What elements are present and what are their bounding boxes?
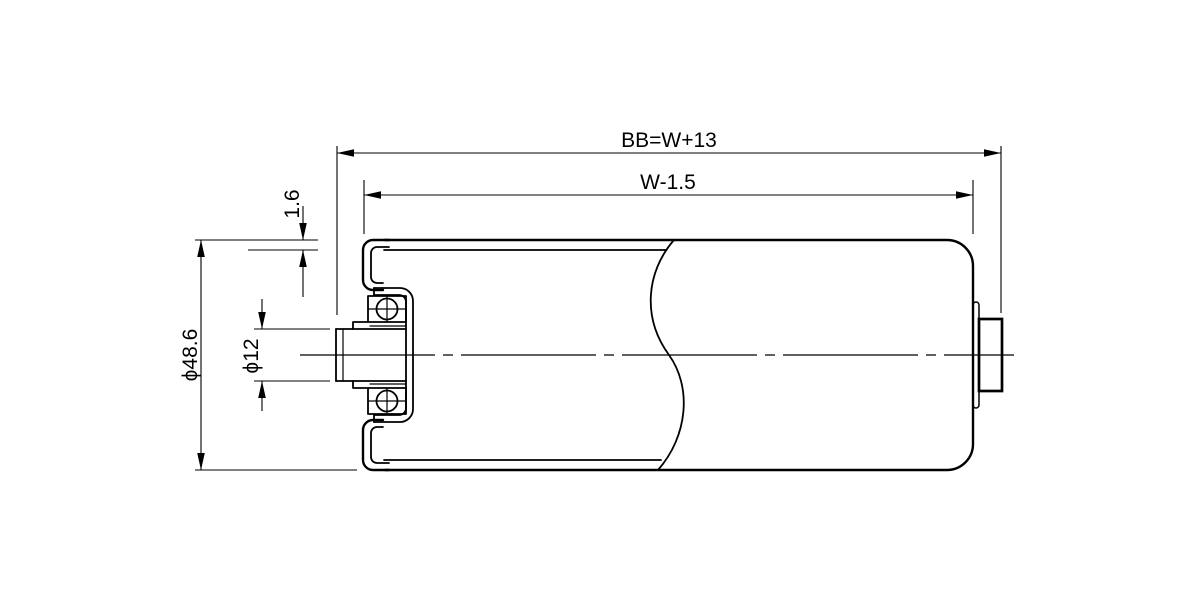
tube-rolled-lip-top-inner — [371, 247, 389, 283]
dim-label-overall-length: BB=W+13 — [621, 129, 717, 152]
dimension-tube-length: W-1.5 — [364, 171, 973, 234]
dimension-wall-thickness: 1.6 — [248, 189, 318, 297]
tube-rolled-lip-bottom-inner — [371, 427, 389, 463]
dim-label-tube-length: W-1.5 — [640, 171, 696, 194]
dimension-overall-length: BB=W+13 — [337, 129, 1001, 315]
roller-technical-drawing: BB=W+13 W-1.5 ϕ48.6 ϕ12 1.6 — [0, 0, 1200, 600]
arrowhead-top — [197, 240, 205, 257]
dim-label-shaft-diameter: ϕ12 — [240, 338, 263, 373]
dim-label-roller-diameter: ϕ48.6 — [179, 329, 202, 382]
hub-step-top — [353, 322, 368, 329]
hub-step-bottom — [353, 381, 368, 388]
dim-label-wall-thickness: 1.6 — [281, 189, 304, 218]
arrowhead-top — [258, 312, 266, 329]
arrowhead-right — [984, 149, 1001, 157]
arrowhead-right — [956, 191, 973, 199]
arrowhead-bottom — [299, 250, 307, 267]
arrowhead-bottom — [258, 381, 266, 398]
arrowhead-left — [364, 191, 381, 199]
arrowhead-left — [337, 149, 354, 157]
drawing-canvas: BB=W+13 W-1.5 ϕ48.6 ϕ12 1.6 — [0, 0, 1200, 600]
arrowhead-bottom — [197, 453, 205, 470]
arrowhead-top — [299, 223, 307, 240]
